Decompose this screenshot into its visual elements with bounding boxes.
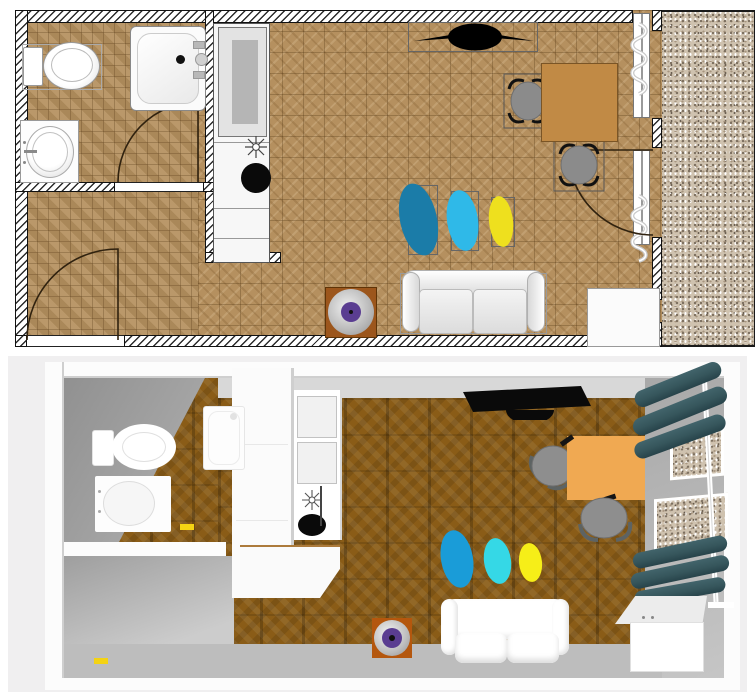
counter-divider bbox=[214, 208, 269, 209]
record-player[interactable] bbox=[325, 287, 377, 338]
shower-drain bbox=[176, 55, 185, 64]
burner-icon-3d bbox=[302, 490, 322, 510]
outer-wall-west-3d bbox=[45, 362, 62, 684]
sofa-cushion bbox=[419, 289, 473, 334]
toilet-tank-3d bbox=[92, 430, 114, 466]
pouf-cyan[interactable] bbox=[447, 188, 480, 254]
basin-knob bbox=[23, 161, 26, 164]
kitchen-sink[interactable] bbox=[241, 163, 271, 193]
view-3d-pane bbox=[8, 356, 747, 692]
basin-knob-3d bbox=[98, 510, 101, 513]
floorplan-screenshot bbox=[0, 0, 755, 697]
low-cabinet-3d[interactable] bbox=[630, 622, 704, 672]
dining-chair[interactable] bbox=[553, 138, 605, 192]
shower-handle bbox=[193, 41, 205, 49]
toilet-tank bbox=[23, 47, 43, 86]
vinyl-hole-3d bbox=[389, 635, 395, 641]
sofa-3d[interactable] bbox=[441, 599, 569, 663]
kitchen-lower-unit-3d[interactable] bbox=[240, 545, 340, 598]
basin-inner bbox=[32, 132, 68, 172]
counter-panel bbox=[297, 396, 337, 438]
counter-edge-line bbox=[320, 486, 322, 526]
curtains-upper-3d[interactable] bbox=[630, 370, 730, 460]
entry-door-opening[interactable] bbox=[27, 335, 124, 347]
pouf-teal[interactable] bbox=[400, 181, 440, 259]
curtain-icon bbox=[625, 192, 653, 268]
sofa[interactable] bbox=[400, 270, 547, 335]
toilet-bowl-ring-3d bbox=[122, 432, 166, 462]
refrigerator[interactable] bbox=[218, 27, 267, 137]
shower-handle bbox=[193, 71, 205, 79]
sofa-arm-right bbox=[527, 272, 545, 332]
balcony-floor bbox=[662, 10, 755, 347]
basin-bowl-3d bbox=[103, 481, 155, 526]
wall-east-b bbox=[652, 118, 662, 148]
sofa-arm-left bbox=[402, 272, 420, 332]
south-floor-shadow bbox=[62, 644, 662, 678]
counter-divider bbox=[214, 238, 269, 239]
cabinet-hinge-dot bbox=[651, 616, 654, 619]
shower-inner bbox=[137, 33, 199, 104]
counter-panel bbox=[297, 442, 337, 484]
refrigerator-top bbox=[232, 40, 258, 124]
low-cabinet[interactable] bbox=[587, 288, 660, 347]
wall-south-b bbox=[124, 335, 662, 347]
toilet[interactable] bbox=[22, 40, 102, 92]
sofa-cushion bbox=[473, 289, 527, 334]
basin-faucet bbox=[24, 150, 37, 153]
basin-knob-3d bbox=[98, 490, 101, 493]
shower-tray[interactable] bbox=[130, 26, 206, 111]
wall-south-a bbox=[15, 335, 27, 347]
door-handle-yellow bbox=[94, 658, 108, 664]
curtain-icon bbox=[625, 20, 653, 100]
tv-3d[interactable] bbox=[451, 382, 601, 420]
outer-wall-south-3d bbox=[45, 678, 725, 690]
plan-2d-pane bbox=[15, 10, 743, 348]
cabinet-seam bbox=[236, 520, 288, 521]
washbasin-3d[interactable] bbox=[95, 476, 171, 532]
bathroom-door-opening[interactable] bbox=[115, 182, 203, 192]
kitchen-counter-3d[interactable] bbox=[294, 390, 342, 540]
shower-knob bbox=[195, 53, 208, 66]
dining-chair-3d[interactable] bbox=[574, 496, 636, 546]
wall-east-a bbox=[652, 10, 662, 31]
door-handle-yellow bbox=[180, 524, 194, 530]
dining-table[interactable] bbox=[541, 63, 618, 142]
cabinet-hinge-dot bbox=[642, 616, 645, 619]
sofa-seat-3d bbox=[507, 633, 559, 663]
outer-wall-north-3d bbox=[45, 362, 725, 376]
tv[interactable] bbox=[408, 22, 538, 52]
washbasin[interactable] bbox=[20, 120, 79, 183]
toilet-bowl-inner bbox=[51, 48, 93, 82]
sofa-seat-3d bbox=[455, 633, 507, 663]
toilet-3d[interactable] bbox=[92, 422, 178, 472]
shower-knob-3d bbox=[230, 413, 237, 420]
shower-3d[interactable] bbox=[203, 406, 245, 470]
pouf-yellow[interactable] bbox=[488, 194, 516, 250]
cooktop-burner-icon[interactable] bbox=[245, 136, 267, 158]
vinyl-hole bbox=[349, 310, 353, 314]
record-player-3d[interactable] bbox=[372, 618, 412, 658]
basin-knob bbox=[23, 141, 26, 144]
wall-north bbox=[15, 10, 633, 23]
wall-bathroom-south-a bbox=[15, 182, 115, 192]
